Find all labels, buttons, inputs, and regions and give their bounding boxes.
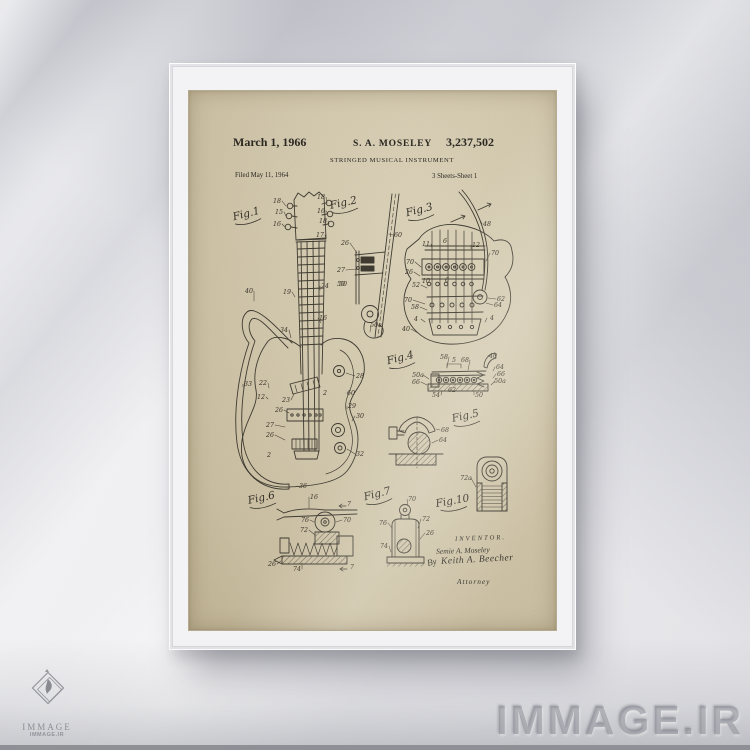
leader-line <box>432 440 438 443</box>
leader-line <box>282 224 285 227</box>
fig10-roller-detail-drawing <box>477 457 507 511</box>
leader-line <box>485 318 487 322</box>
part-number-label: 74 <box>293 566 301 573</box>
part-number-label: 26 <box>340 240 349 247</box>
part-number-label: 60 <box>394 232 402 239</box>
part-number-label: 76 <box>379 520 387 527</box>
leader-line <box>291 394 294 400</box>
part-number-label: 40 <box>488 353 497 360</box>
leader-line <box>289 330 291 338</box>
figure-label: Fig.2 <box>328 194 359 212</box>
part-number-label: 7 <box>350 564 354 571</box>
part-number-label: 26 <box>274 407 283 414</box>
part-number-label: 52 <box>412 282 420 289</box>
part-number-label: 10 <box>422 278 430 285</box>
part-number-label: 40 <box>244 288 253 295</box>
part-number-label: 6 <box>443 238 447 245</box>
part-number-label: 16 <box>317 208 325 215</box>
leader-line <box>420 533 425 539</box>
leader-line <box>421 382 427 385</box>
part-number-label: 68 <box>441 427 449 434</box>
fig6-vibrato-drawing <box>274 504 357 571</box>
part-number-label: 72 <box>422 516 430 523</box>
part-number-label: 23 <box>281 397 290 404</box>
poster-frame: March 1, 1966 S. A. MOSELEY 3,237,502 ST… <box>169 63 576 650</box>
leader-line <box>420 307 427 310</box>
part-number-label: 15 <box>275 209 283 216</box>
part-number-label: 24 <box>320 283 329 290</box>
immage-logo-subtitle: IMMAGE.IR <box>8 732 86 738</box>
part-number-label: 19 <box>283 289 291 296</box>
part-number-label: 72 <box>300 527 308 534</box>
part-number-label: 16 <box>273 221 281 228</box>
part-number-label: 70 <box>343 517 351 524</box>
part-number-label: 68 <box>461 357 469 364</box>
immage-logo-mark <box>24 665 70 715</box>
wall: March 1, 1966 S. A. MOSELEY 3,237,502 ST… <box>0 0 750 750</box>
part-number-label: 76 <box>301 517 309 524</box>
fig1-guitar-drawing <box>236 192 365 489</box>
fig2-neck-side-drawing <box>355 194 399 338</box>
part-number-label: 48 <box>482 221 491 228</box>
part-number-label: 62 <box>448 387 456 394</box>
part-number-label: 2 <box>266 452 271 459</box>
part-number-label: 18 <box>273 198 281 205</box>
flame-icon <box>46 679 52 694</box>
part-number-label: 54 <box>432 392 440 399</box>
part-number-label: 7 <box>347 501 351 508</box>
fig7-roller-post-drawing <box>385 505 426 567</box>
part-number-label: 11 <box>422 241 430 248</box>
leader-line <box>486 303 493 305</box>
figure-label: Fig.5 <box>450 407 481 425</box>
part-number-label: 34 <box>280 327 288 334</box>
part-number-label: 16 <box>319 315 327 322</box>
part-number-label: 29 <box>347 403 356 410</box>
leader-line <box>389 546 391 552</box>
leader-line <box>441 391 442 395</box>
leader-line <box>436 429 440 430</box>
leader-line <box>488 298 496 299</box>
part-number-label: 66 <box>497 371 505 378</box>
part-number-label: 28 <box>355 373 364 380</box>
part-number-label: 4 <box>489 315 494 322</box>
part-number-label: 26 <box>425 530 434 537</box>
part-numbers: 1815161816181724501619403433221223262726… <box>243 194 506 573</box>
leader-line <box>284 410 289 413</box>
part-number-label: 26 <box>404 269 413 276</box>
part-number-label: 26 <box>267 561 276 568</box>
part-number-label: 12 <box>257 394 265 401</box>
leader-line <box>421 285 427 288</box>
part-number-label: 50a <box>412 372 424 379</box>
part-number-label: 32 <box>356 451 364 458</box>
leader-line <box>292 292 295 297</box>
leader-line <box>309 530 315 535</box>
part-number-label: 16 <box>310 494 318 501</box>
part-number-label: 4 <box>413 316 418 323</box>
part-number-label: 64 <box>439 437 447 444</box>
part-number-label: 72a <box>460 475 472 482</box>
part-number-label: 27 <box>265 422 274 429</box>
leader-line <box>275 425 285 427</box>
part-number-label: 70 <box>404 297 412 304</box>
part-number-label: 50 <box>339 281 347 288</box>
part-number-label: 30 <box>356 413 364 420</box>
part-number-label: 64 <box>494 302 502 309</box>
leader-line <box>388 523 392 528</box>
part-number-label: 58 <box>411 304 419 311</box>
leader-line <box>268 383 269 388</box>
part-number-label: 18 <box>319 218 327 225</box>
part-number-label: 2 <box>322 390 327 397</box>
figure-label: Fig.6 <box>246 489 277 507</box>
leader-line <box>414 272 420 276</box>
part-number-label: 74 <box>380 543 388 550</box>
part-number-label: 60 <box>347 390 355 397</box>
part-number-label: 50a <box>494 378 506 385</box>
leader-line <box>493 367 495 371</box>
leader-line <box>415 262 421 267</box>
part-number-label: 17 <box>316 232 324 239</box>
part-number-label: 50 <box>475 392 483 399</box>
part-number-label: 70 <box>408 496 416 503</box>
part-number-label: 50a <box>370 322 382 329</box>
part-number-label: 5 <box>452 357 456 364</box>
leader-line <box>275 435 285 440</box>
patent-poster: March 1, 1966 S. A. MOSELEY 3,237,502 ST… <box>189 91 556 630</box>
part-number-label: 26 <box>265 432 274 439</box>
leader-line <box>350 243 357 253</box>
part-number-label: 6 <box>445 277 449 284</box>
leader-line <box>389 234 393 235</box>
part-number-label: 66 <box>412 379 420 386</box>
part-number-label: 18 <box>317 194 325 201</box>
fig5-post-section-drawing <box>389 417 443 468</box>
attorney-label: Attorney <box>457 577 490 586</box>
patent-drawing: Fig.1Fig.2Fig.3Fig.4Fig.5Fig.6Fig.7Fig.1… <box>189 91 556 630</box>
floor-edge <box>0 745 750 750</box>
part-number-label: 70 <box>491 250 499 257</box>
part-number-label: 33 <box>244 381 252 388</box>
part-number-label: 12 <box>472 242 480 249</box>
part-number-label: 22 <box>258 380 267 387</box>
leader-line <box>310 520 314 522</box>
immage-watermark: IMMAGE.IR <box>496 697 744 744</box>
leader-line <box>282 201 286 206</box>
leader-line <box>284 212 286 216</box>
part-number-label: 70 <box>406 259 414 266</box>
immage-logo-title: IMMAGE <box>8 722 86 732</box>
part-number-label: 64 <box>496 364 504 371</box>
part-number-label: 36 <box>299 483 307 490</box>
leader-line <box>421 319 425 322</box>
immage-logo: IMMAGE IMMAGE.IR <box>8 665 86 738</box>
part-number-label: 27 <box>336 267 345 274</box>
leader-line <box>423 375 429 379</box>
leader-line <box>336 520 342 522</box>
leader-line <box>266 397 268 399</box>
part-number-label: 40 <box>401 326 410 333</box>
part-number-label: 58 <box>440 354 448 361</box>
